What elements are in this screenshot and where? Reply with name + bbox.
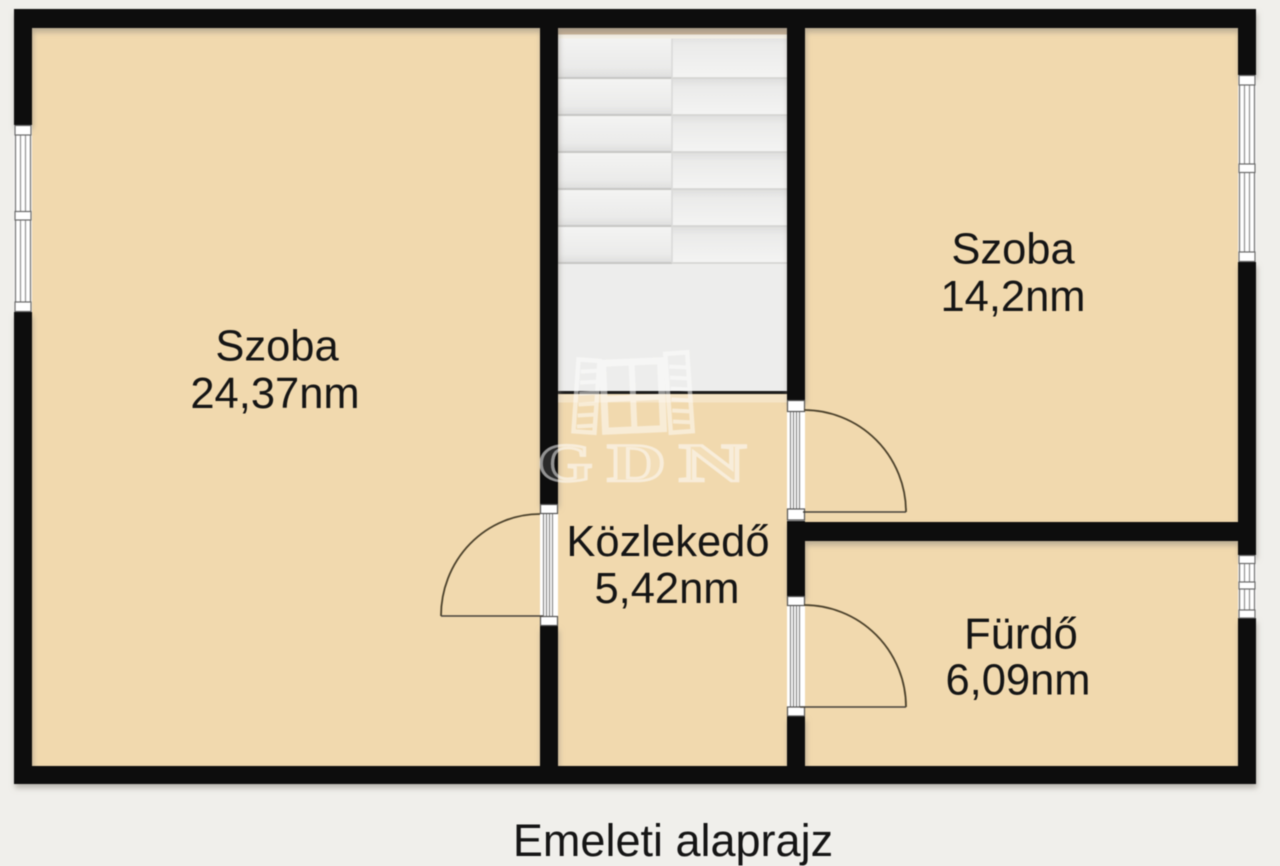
svg-text:Közlekedő: Közlekedő — [566, 518, 769, 566]
svg-text:5,42nm: 5,42nm — [594, 565, 739, 613]
svg-text:6,09nm: 6,09nm — [945, 657, 1090, 705]
svg-text:D: D — [607, 433, 666, 493]
svg-text:Szoba: Szoba — [215, 323, 339, 371]
svg-text:Szoba: Szoba — [951, 226, 1075, 274]
svg-text:Emeleti alaprajz: Emeleti alaprajz — [513, 815, 833, 866]
svg-text:24,37nm: 24,37nm — [190, 370, 359, 418]
svg-text:Fürdő: Fürdő — [964, 611, 1078, 659]
svg-text:G: G — [538, 433, 593, 493]
svg-text:14,2nm: 14,2nm — [940, 273, 1085, 321]
svg-text:N: N — [679, 433, 746, 493]
